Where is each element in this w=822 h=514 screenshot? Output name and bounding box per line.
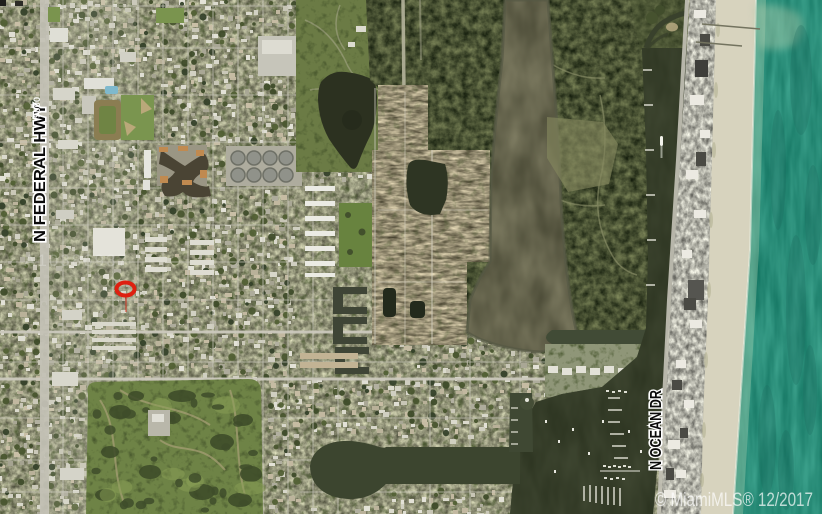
svg-text:© MiamiMLS® 12/2017: © MiamiMLS® 12/2017 (655, 490, 813, 511)
svg-text:9000: 9000 (32, 97, 43, 118)
svg-text:N FEDERAL HWY: N FEDERAL HWY (32, 103, 49, 242)
svg-text:A10386937: A10386937 (24, 251, 129, 270)
svg-text:N OCEAN DR: N OCEAN DR (648, 390, 665, 470)
